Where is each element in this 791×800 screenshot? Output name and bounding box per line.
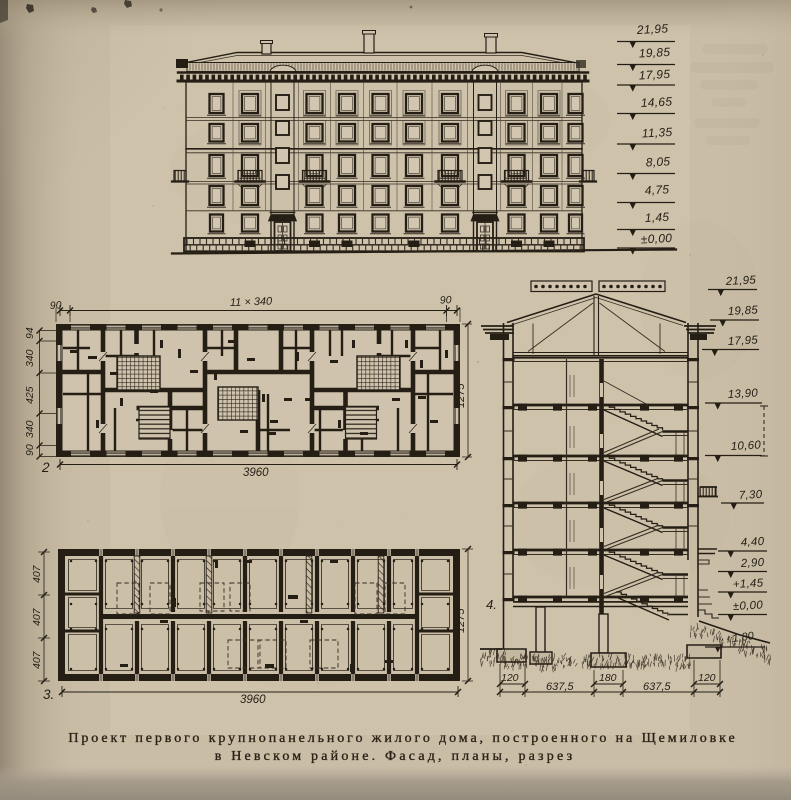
svg-text:340: 340	[24, 420, 36, 438]
svg-text:120: 120	[698, 672, 716, 684]
svg-text:10,60: 10,60	[731, 439, 762, 453]
svg-text:340: 340	[24, 349, 36, 367]
svg-text:90: 90	[24, 444, 36, 456]
svg-text:637,5: 637,5	[643, 681, 671, 693]
svg-text:407: 407	[31, 650, 43, 669]
svg-text:±0,00: ±0,00	[733, 599, 764, 613]
svg-text:11 × 340: 11 × 340	[230, 295, 274, 309]
svg-text:90: 90	[50, 299, 62, 312]
svg-text:21,95: 21,95	[635, 21, 668, 37]
svg-text:±0,00: ±0,00	[640, 231, 672, 247]
svg-text:180: 180	[599, 672, 617, 684]
svg-text:14,65: 14,65	[640, 94, 672, 110]
svg-text:3960: 3960	[240, 694, 266, 706]
svg-text:3.: 3.	[43, 687, 54, 702]
svg-text:+1,45: +1,45	[733, 577, 764, 591]
svg-text:4,75: 4,75	[644, 182, 669, 197]
svg-text:407: 407	[31, 607, 43, 626]
svg-text:407: 407	[31, 564, 43, 583]
svg-text:21,95: 21,95	[725, 274, 757, 288]
svg-text:Проект первого крупнопанельног: Проект первого крупнопанельного жилого д…	[68, 731, 737, 746]
svg-text:425: 425	[24, 386, 36, 404]
svg-text:11,35: 11,35	[641, 125, 672, 141]
svg-text:2,90: 2,90	[740, 557, 765, 570]
svg-text:90: 90	[440, 294, 452, 307]
svg-text:7,30: 7,30	[739, 489, 763, 502]
svg-text:1275: 1275	[455, 383, 467, 408]
svg-text:17,95: 17,95	[728, 334, 759, 348]
svg-text:4.: 4.	[486, 597, 497, 612]
svg-text:4,40: 4,40	[741, 536, 765, 549]
svg-text:19,85: 19,85	[728, 304, 759, 318]
svg-text:в Невском районе. Фасад, планы: в Невском районе. Фасад, планы, разрез	[215, 749, 576, 764]
svg-text:8,05: 8,05	[645, 154, 670, 169]
svg-text:19,85: 19,85	[638, 45, 670, 61]
svg-text:1275: 1275	[455, 608, 467, 633]
svg-text:3960: 3960	[243, 467, 269, 479]
svg-text:637,5: 637,5	[546, 681, 574, 693]
svg-text:120: 120	[501, 672, 519, 684]
svg-text:2: 2	[41, 460, 50, 475]
svg-text:1,45: 1,45	[644, 210, 669, 225]
svg-text:13,90: 13,90	[728, 387, 759, 401]
svg-text:17,95: 17,95	[638, 67, 670, 83]
svg-text:94: 94	[24, 327, 36, 339]
